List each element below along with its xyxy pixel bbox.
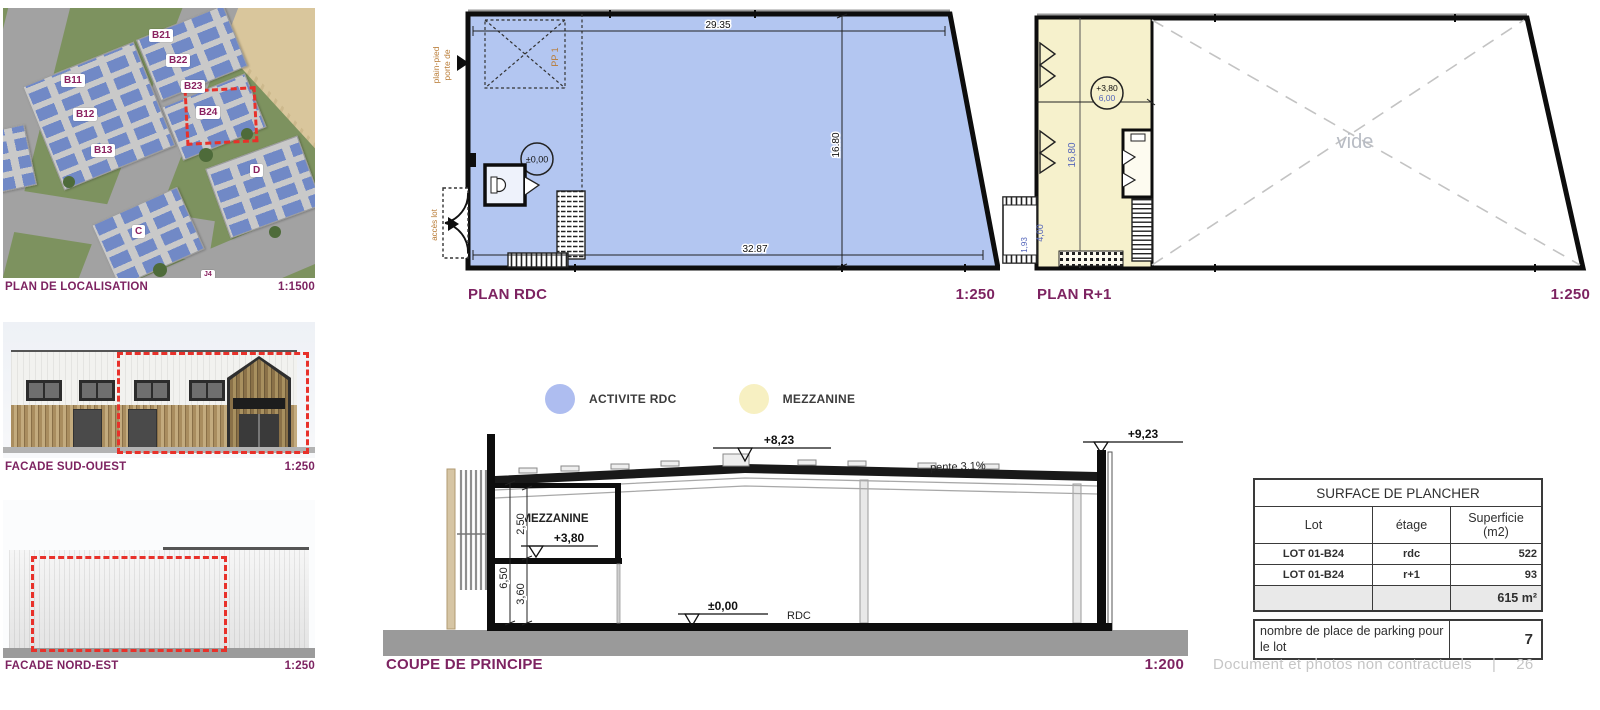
- facade-ne-scale: 1:250: [285, 660, 315, 672]
- site-label-c: C: [132, 225, 145, 238]
- dim-top-value: 29.35: [705, 20, 730, 31]
- wc-room-r1: [1123, 130, 1152, 197]
- column: [1073, 484, 1081, 623]
- coupe-title: COUPE DE PRINCIPE: [386, 656, 543, 673]
- left-wall: [487, 434, 495, 630]
- plan-rdc-caption: PLAN RDC 1:250: [468, 286, 995, 303]
- localisation-scale: 1:1500: [278, 281, 315, 293]
- footer-separator: |: [1492, 656, 1496, 673]
- col-superficie: Superficie (m2): [1450, 507, 1541, 543]
- total-empty-2: [1372, 586, 1450, 610]
- plan-sheet-page: { "colors": { "accent_purple": "#7d2361"…: [0, 0, 1600, 710]
- mezzanine-label: MEZZANINE: [521, 513, 588, 525]
- right-wall: [1097, 450, 1106, 630]
- tree: [153, 263, 167, 277]
- parking-value: 7: [1450, 621, 1541, 658]
- table-total-row: 615 m²: [1255, 585, 1541, 610]
- site-label-d: D: [250, 164, 263, 177]
- site-label-b21: B21: [149, 29, 173, 42]
- roof-edge-line: [163, 547, 309, 550]
- legend: ACTIVITE RDC MEZZANINE: [545, 384, 855, 414]
- facade-so-scale: 1:250: [285, 461, 315, 473]
- site-label-b23: B23: [181, 80, 205, 93]
- entry-depth-value: 4,00: [1035, 224, 1045, 242]
- plan-rdc-scale: 1:250: [956, 286, 995, 303]
- door: [73, 409, 102, 449]
- void-label: vide: [1337, 131, 1374, 153]
- row1-etage: r+1: [1372, 565, 1450, 585]
- facade-so-caption: FACADE SUD-OUEST 1:250: [5, 461, 315, 473]
- site-label-j4: J4: [201, 270, 215, 278]
- legend-swatch-yellow: [739, 384, 769, 414]
- lot-highlight-so: [117, 352, 309, 454]
- porte-plain-pied-line2: plain-pied: [431, 46, 441, 83]
- site-label-b13: B13: [91, 144, 115, 157]
- coupe-drawing: MEZZANINE +3,80 +8,23 +9,23 pente 3,1% ±…: [383, 418, 1188, 658]
- footer-disclaimer: Document et photos non contractuels: [1213, 656, 1472, 673]
- facade-nord-est-image: [3, 500, 315, 658]
- row0-etage: rdc: [1372, 544, 1450, 564]
- lot-b24-outline: [184, 86, 259, 146]
- ground-level-value: ±0,00: [708, 599, 738, 613]
- row0-lot: LOT 01-B24: [1255, 544, 1372, 564]
- localisation-plan-image: B21 B22 B11 B23 B12 B24 B13 D C J4: [3, 8, 315, 278]
- floor-slab: [487, 623, 1112, 631]
- facade-ne-title: FACADE NORD-EST: [5, 660, 119, 672]
- tree: [269, 226, 281, 238]
- site-label-b22: B22: [166, 54, 190, 67]
- dim-height-value: 16.80: [831, 132, 842, 157]
- plan-r1-caption: PLAN R+1 1:250: [1037, 286, 1590, 303]
- col-etage: étage: [1372, 507, 1450, 543]
- plan-r1-title: PLAN R+1: [1037, 286, 1112, 303]
- col-lot: Lot: [1255, 507, 1372, 543]
- r1-level-text: +3,80: [1096, 83, 1118, 93]
- parking-block: nombre de place de parking pour le lot 7: [1253, 619, 1543, 660]
- mezzanine-level-value: +3,80: [554, 531, 585, 545]
- legend-item-activite: ACTIVITE RDC: [545, 384, 677, 414]
- rdc-level-text: ±0,00: [526, 155, 548, 165]
- parapet-level-value: +9,23: [1128, 427, 1159, 441]
- total-empty-1: [1255, 586, 1372, 610]
- roof-level-value: +8,23: [764, 433, 795, 447]
- stair-flight-up: [557, 191, 585, 259]
- row1-superficie: 93: [1450, 565, 1541, 585]
- surface-table: SURFACE DE PLANCHER Lot étage Superficie…: [1253, 478, 1543, 660]
- dim-under-value: 3,60: [515, 583, 527, 604]
- dim-total-value: 6,50: [498, 567, 510, 588]
- roof-band: [495, 464, 1097, 485]
- dim-bottom-value: 32.87: [742, 244, 767, 255]
- lot-highlight-ne: [31, 556, 227, 652]
- tree: [63, 176, 75, 188]
- entry-width-value: 1,93: [1020, 237, 1029, 253]
- rdc-floor-area: [468, 14, 998, 268]
- site-label-b11: B11: [61, 74, 85, 87]
- right-cladding: [1108, 452, 1112, 630]
- rdc-label: RDC: [787, 610, 811, 622]
- table-row: LOT 01-B24 rdc 522: [1255, 543, 1541, 564]
- acces-lot-doors: [443, 188, 468, 258]
- plan-r1-svg: vide +3,80 6,00 16,80 4,00 1,93: [1000, 5, 1600, 290]
- acces-lot-label: accès lot: [430, 208, 439, 240]
- legend-label-mezzanine: MEZZANINE: [783, 392, 856, 406]
- stair-flight-r1: [1132, 199, 1152, 261]
- ground-strip: [383, 630, 1188, 656]
- plan-rdc-drawing: PP 1 ±0,00 accès lot plain-pied porte de…: [425, 5, 1000, 290]
- localisation-title: PLAN DE LOCALISATION: [5, 281, 148, 293]
- tree: [199, 148, 213, 162]
- footer-page-number: 26: [1516, 656, 1533, 673]
- plan-rdc-svg: PP 1 ±0,00 accès lot plain-pied porte de…: [425, 5, 1000, 290]
- wood-slats: [447, 469, 489, 629]
- plan-r1-scale: 1:250: [1551, 286, 1590, 303]
- row0-superficie: 522: [1450, 544, 1541, 564]
- page-footer: Document et photos non contractuels | 26: [1213, 656, 1533, 673]
- dim-mezzanine-value: 2,50: [515, 513, 527, 534]
- dim-total-line: [505, 481, 515, 625]
- localisation-caption: PLAN DE LOCALISATION 1:1500: [5, 281, 315, 293]
- mezzanine-level-marker: [521, 546, 598, 557]
- site-label-b12: B12: [73, 108, 97, 121]
- coupe-caption: COUPE DE PRINCIPE 1:200: [386, 656, 1184, 673]
- window: [79, 380, 115, 401]
- coupe-scale: 1:200: [1145, 656, 1184, 673]
- r1-width-value: 6,00: [1099, 93, 1116, 103]
- table-header-row: Lot étage Superficie (m2): [1255, 506, 1541, 543]
- surface-table-main: SURFACE DE PLANCHER Lot étage Superficie…: [1253, 478, 1543, 612]
- table-row: LOT 01-B24 r+1 93: [1255, 564, 1541, 585]
- slope-label: pente 3,1%: [930, 460, 986, 474]
- table-title: SURFACE DE PLANCHER: [1255, 480, 1541, 506]
- coupe-svg: MEZZANINE +3,80 +8,23 +9,23 pente 3,1% ±…: [383, 418, 1188, 658]
- facade-sud-ouest-image: [3, 322, 315, 458]
- row1-lot: LOT 01-B24: [1255, 565, 1372, 585]
- pp1-label: PP 1: [550, 47, 560, 66]
- plan-rdc-title: PLAN RDC: [468, 286, 547, 303]
- total-value: 615 m²: [1450, 586, 1541, 610]
- porte-plain-pied-line1: porte de: [442, 49, 452, 80]
- wall-door-jamb: [468, 153, 476, 167]
- facade-so-title: FACADE SUD-OUEST: [5, 461, 126, 473]
- legend-item-mezzanine: MEZZANINE: [739, 384, 856, 414]
- r1-height-value: 16,80: [1067, 142, 1078, 167]
- legend-swatch-blue: [545, 384, 575, 414]
- site-label-b24: B24: [196, 106, 220, 119]
- window: [26, 380, 62, 401]
- facade-ne-caption: FACADE NORD-EST 1:250: [5, 660, 315, 672]
- plan-r1-drawing: vide +3,80 6,00 16,80 4,00 1,93: [1000, 5, 1600, 290]
- legend-label-activite: ACTIVITE RDC: [589, 392, 677, 406]
- dotted-landing: [1059, 251, 1123, 266]
- column: [860, 480, 868, 623]
- parking-label: nombre de place de parking pour le lot: [1255, 621, 1450, 658]
